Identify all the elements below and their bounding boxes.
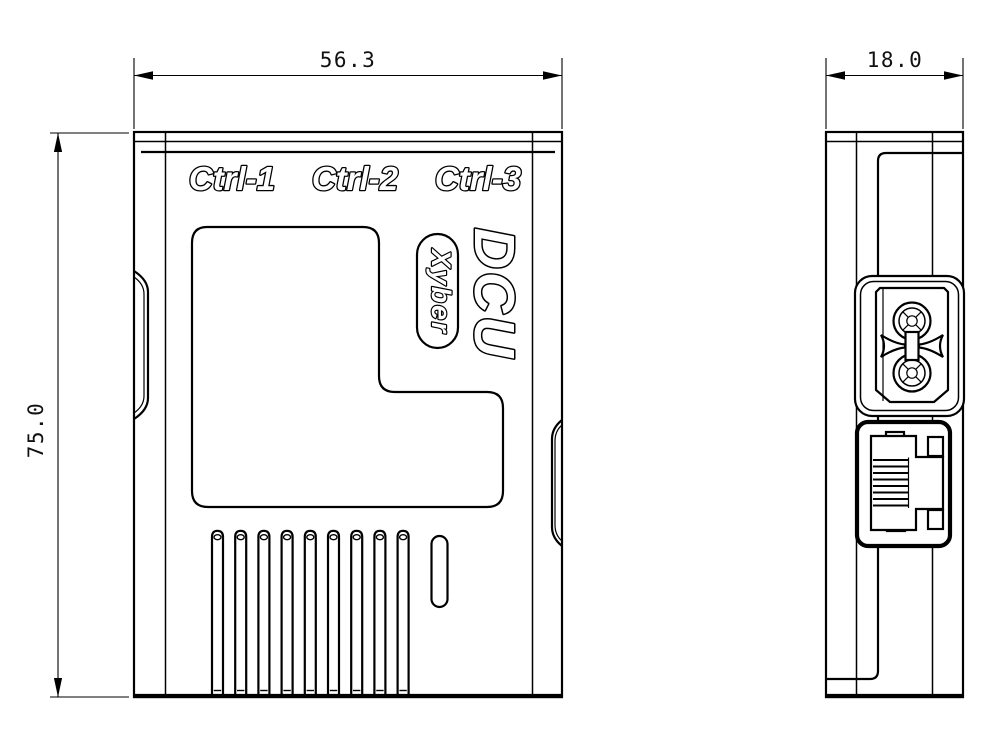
dimension-front-height: 75.0 — [24, 133, 129, 697]
vent-slot — [398, 531, 409, 696]
arrowhead-left — [134, 71, 153, 79]
side-view — [825, 132, 964, 697]
vent-slot — [235, 531, 246, 696]
arrowhead-up — [54, 133, 62, 152]
label-ctrl-2: Ctrl-2 — [312, 160, 399, 197]
dim-front-width-text: 56.3 — [320, 48, 377, 72]
label-ctrl-1: Ctrl-1 — [189, 160, 275, 197]
arrowhead-down — [54, 678, 62, 697]
dimension-front-width: 56.3 — [134, 48, 562, 129]
label-ctrl-3: Ctrl-3 — [435, 160, 521, 197]
right-latch — [552, 420, 562, 546]
dim-front-height-text: 75.0 — [24, 402, 48, 459]
side-slot — [432, 536, 448, 607]
technical-drawing-canvas: 56.3 75.0 18.0 — [0, 0, 1000, 737]
drawing-page: 56.3 75.0 18.0 — [0, 0, 1000, 737]
dim-side-width-text: 18.0 — [867, 48, 924, 72]
rj45-corner-tab-bottom — [928, 510, 943, 529]
brand-badge-label: Xyber — [426, 247, 456, 334]
dimension-side-width: 18.0 — [826, 48, 963, 129]
vent-slot — [351, 531, 362, 696]
rj45-corner-tab-top — [928, 437, 943, 456]
vent-slot — [374, 531, 385, 696]
left-latch — [134, 271, 148, 419]
arrowhead-left — [826, 71, 845, 79]
vent-slot — [328, 531, 339, 696]
vent-slot — [305, 531, 316, 696]
vent-slot — [258, 531, 269, 696]
model-label: DCU — [462, 228, 526, 361]
ethernet-port-rj45 — [857, 422, 950, 546]
vent-slot — [212, 531, 223, 696]
arrowhead-right — [543, 71, 562, 79]
vent-slot — [282, 531, 293, 696]
power-connector — [855, 276, 964, 416]
front-view: Ctrl-1 Ctrl-2 Ctrl-3 DCU Xyber — [133, 132, 563, 697]
vent-slots — [212, 531, 409, 696]
arrowhead-right — [944, 71, 963, 79]
